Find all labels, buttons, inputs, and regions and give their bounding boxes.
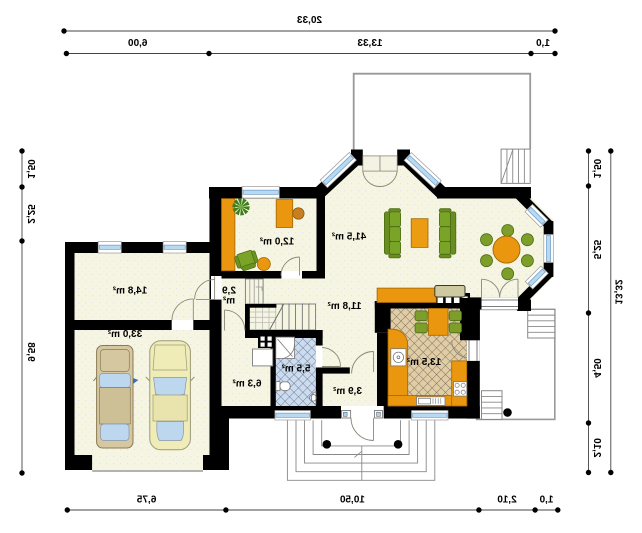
svg-text:41,5 m²: 41,5 m² bbox=[331, 232, 366, 243]
svg-text:6,3 m²: 6,3 m² bbox=[232, 379, 262, 390]
svg-text:33,0 m²: 33,0 m² bbox=[107, 329, 142, 340]
svg-text:4,50: 4,50 bbox=[591, 358, 602, 378]
svg-text:m²: m² bbox=[222, 296, 235, 307]
svg-text:2,25: 2,25 bbox=[25, 204, 36, 224]
svg-text:13,5 m²: 13,5 m² bbox=[406, 357, 441, 368]
svg-text:1,50: 1,50 bbox=[25, 159, 36, 179]
svg-text:1,50: 1,50 bbox=[591, 158, 602, 178]
svg-text:10,50: 10,50 bbox=[339, 495, 364, 506]
svg-text:1,0: 1,0 bbox=[536, 38, 550, 49]
svg-text:6,00: 6,00 bbox=[128, 38, 148, 49]
svg-text:13,32: 13,32 bbox=[613, 279, 624, 304]
svg-text:2,10: 2,10 bbox=[497, 495, 517, 506]
svg-text:5,25: 5,25 bbox=[591, 239, 602, 259]
svg-text:2,10: 2,10 bbox=[591, 438, 602, 458]
svg-text:1,0: 1,0 bbox=[539, 495, 553, 506]
svg-text:9,58: 9,58 bbox=[25, 342, 36, 362]
svg-text:14,8 m²: 14,8 m² bbox=[112, 286, 147, 297]
svg-text:5,5 m²: 5,5 m² bbox=[281, 364, 311, 375]
svg-text:6,75: 6,75 bbox=[136, 495, 156, 506]
svg-text:13,33: 13,33 bbox=[357, 38, 382, 49]
svg-text:12,0 m²: 12,0 m² bbox=[259, 237, 294, 248]
svg-text:11,8 m²: 11,8 m² bbox=[327, 301, 362, 312]
svg-text:20,33: 20,33 bbox=[297, 15, 322, 26]
svg-text:3,9 m²: 3,9 m² bbox=[332, 386, 362, 397]
